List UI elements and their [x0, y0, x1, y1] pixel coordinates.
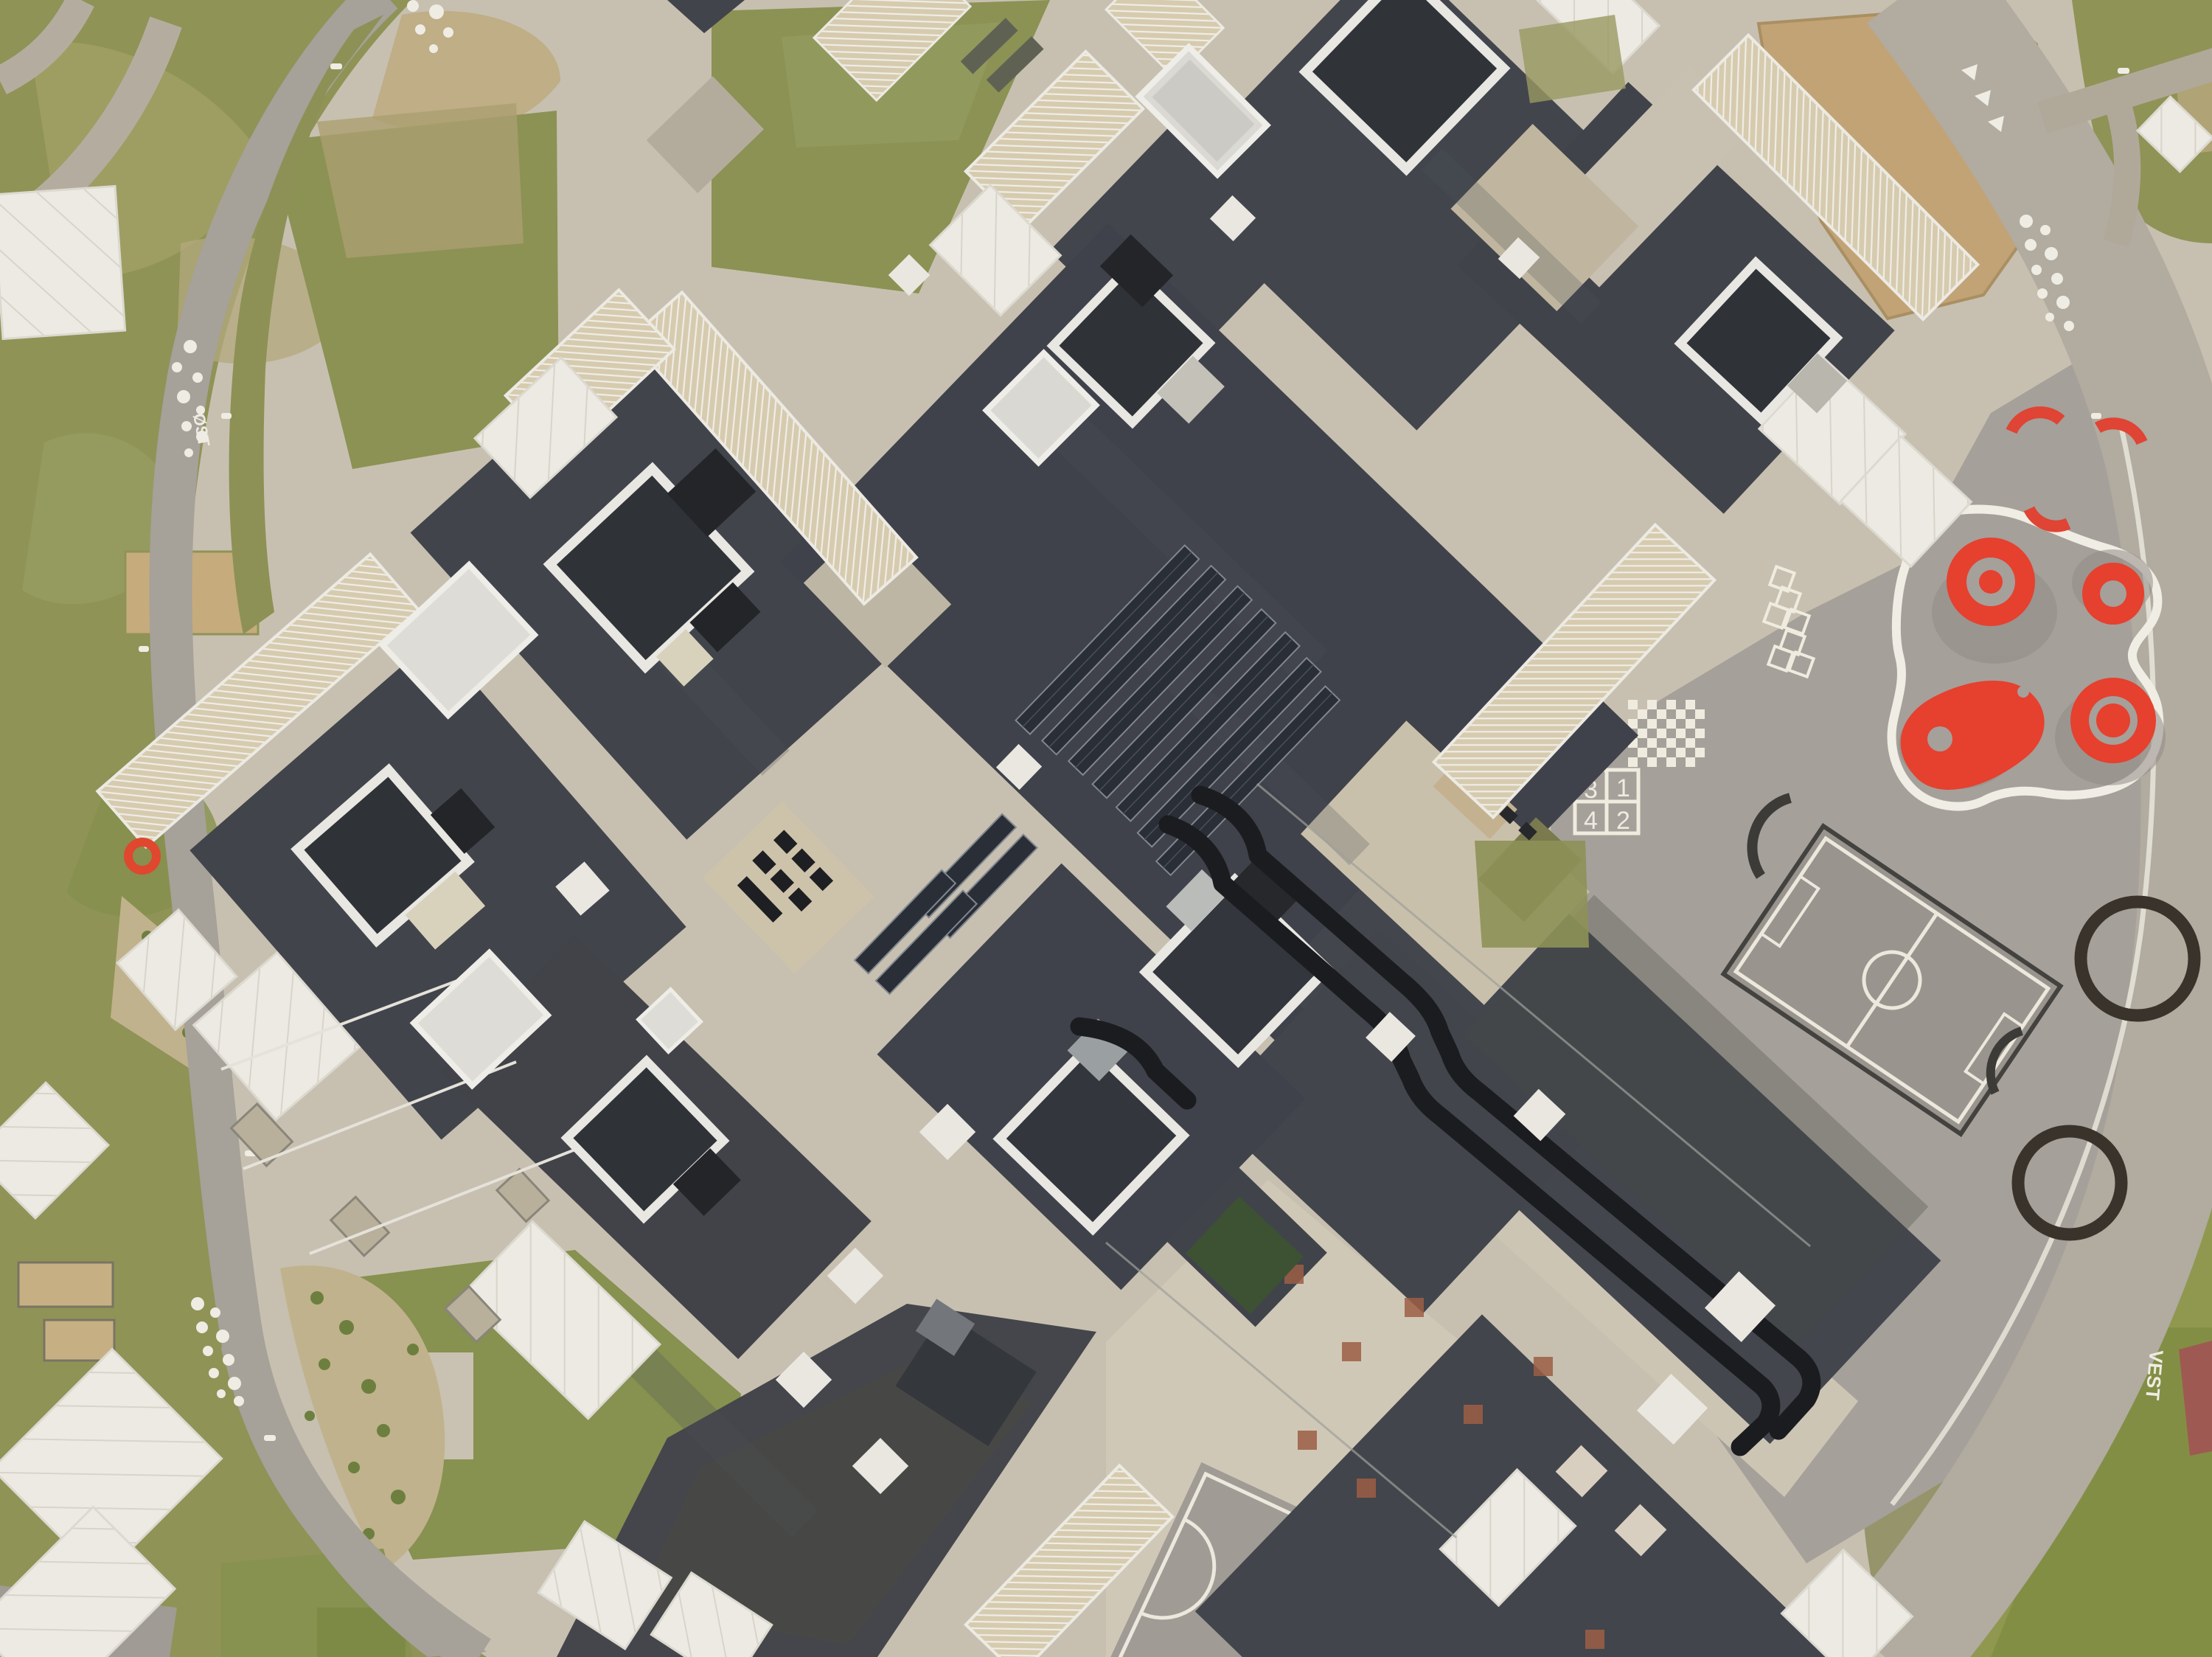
svg-text:4: 4 [1584, 807, 1598, 835]
svg-text:VEST: VEST [2141, 1349, 2168, 1400]
svg-text:1: 1 [1616, 774, 1630, 802]
svg-text:2: 2 [1616, 807, 1630, 835]
